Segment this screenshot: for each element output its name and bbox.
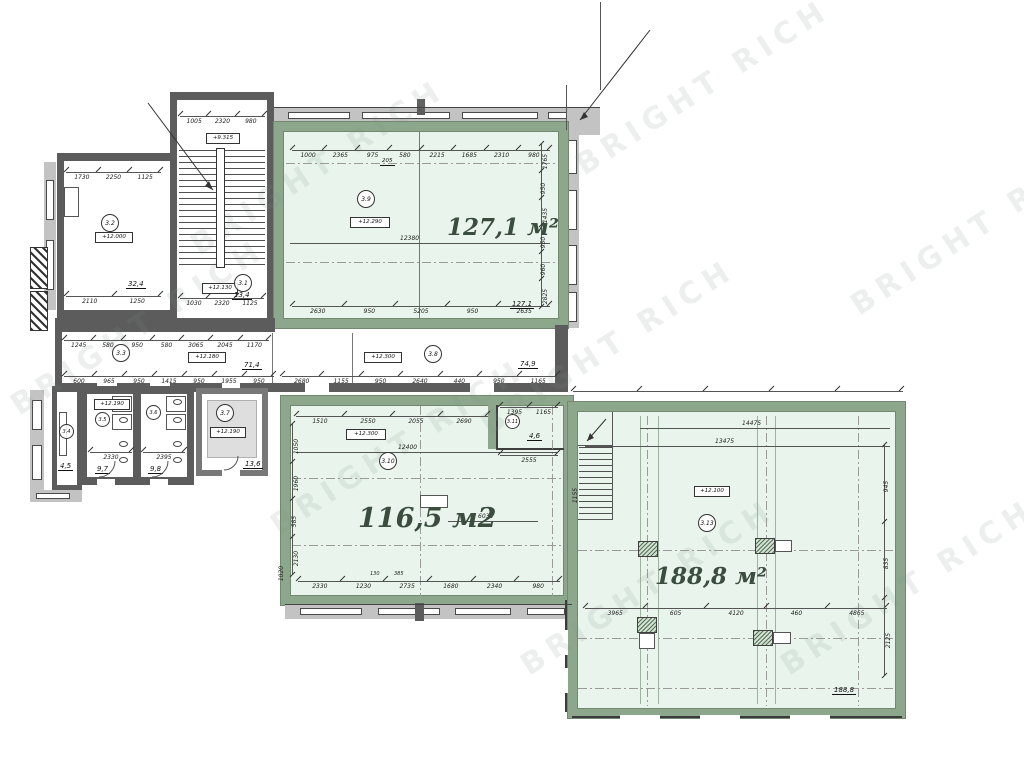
watermark: BRIGHT RICH	[844, 132, 1024, 323]
watermark: BRIGHT RICH	[569, 0, 836, 183]
dimension-chain: 2395	[143, 452, 185, 461]
dimension-chain: 9458352125	[884, 445, 893, 675]
room-area-note: 32,4	[126, 280, 146, 289]
dimension-line	[296, 452, 558, 453]
room-number-badge: 3.11	[505, 414, 520, 429]
grid-line	[286, 163, 558, 164]
room-area-label: 188,8 м²	[655, 563, 767, 590]
level-marker: +12.000	[95, 232, 133, 243]
stair-treads	[579, 447, 612, 515]
partition-line	[419, 132, 420, 318]
grid-line	[292, 478, 564, 479]
room-area-label: 127,1 м²	[447, 214, 559, 241]
room-area-note: 13,4	[232, 291, 252, 300]
window	[462, 112, 538, 119]
dimension-line	[290, 243, 550, 244]
grid-line	[552, 406, 553, 596]
room-number-badge: 3.3	[112, 344, 130, 362]
dimension-chain: 173022501125	[66, 172, 161, 181]
guide-line	[658, 416, 659, 704]
wall-edge-line	[285, 604, 572, 605]
room-area-note: 127,1	[510, 300, 534, 309]
guide-line	[640, 416, 641, 704]
dimension-chain: 10002365975580221516852310980	[292, 150, 550, 159]
column-base	[775, 540, 792, 552]
room-area-note: 188,8	[832, 686, 856, 695]
column	[753, 630, 773, 646]
dimension-label: 14475	[742, 420, 761, 427]
door-swing-arc	[224, 456, 238, 470]
grid-line	[292, 545, 564, 546]
grid-line	[858, 416, 859, 706]
column	[637, 617, 657, 633]
level-marker: +12.190	[94, 399, 130, 410]
dimension-chain: 60096595014159501955950	[64, 376, 274, 385]
grid-line	[578, 550, 895, 551]
room-number-badge: 3.2	[101, 214, 119, 232]
level-marker: +12.300	[364, 352, 402, 363]
stair-enclosure	[612, 412, 613, 520]
ladder-symbol	[64, 187, 79, 217]
window	[790, 715, 830, 719]
grid-line	[566, 85, 567, 130]
room-area-note: 13,6	[243, 460, 263, 469]
level-marker: +12.300	[346, 429, 386, 440]
room-number-badge: 3.13	[698, 514, 716, 532]
dimension-label: 205	[380, 157, 395, 166]
column	[638, 541, 658, 557]
grid-line	[578, 638, 895, 639]
room-number-badge: 3.6	[146, 405, 161, 420]
dimension-chain: 21101250	[66, 296, 161, 305]
partition-wall	[496, 448, 564, 450]
window	[378, 608, 440, 615]
room-area-note: 71,4	[242, 361, 262, 370]
guide-line	[775, 416, 776, 704]
level-marker: +12.100	[694, 486, 730, 497]
room-number-badge: 3.8	[424, 345, 442, 363]
window	[620, 715, 660, 719]
sink	[119, 441, 128, 447]
room-area-note: 9,7	[95, 465, 110, 474]
hatched-wall-section	[30, 247, 48, 289]
dimension-label: 12380	[400, 235, 419, 242]
room-number-badge: 3.1	[234, 274, 252, 292]
stair-enclosure	[578, 519, 612, 520]
dimension-chain: 2330	[90, 452, 132, 461]
dimension-chain: 2680115595026404409501165	[282, 376, 558, 385]
wall	[133, 394, 141, 477]
level-marker: +12.180	[188, 352, 226, 363]
room-area-label: 116,5 м2	[358, 503, 496, 534]
grid-line	[766, 416, 767, 706]
window	[568, 245, 577, 285]
window	[36, 493, 70, 499]
room-area-note: 74,9	[518, 360, 538, 369]
room-area-note: 4,5	[58, 462, 73, 471]
sink	[173, 441, 182, 447]
wall	[57, 153, 64, 318]
room-188-8	[568, 402, 905, 718]
level-marker: +9.315	[206, 133, 240, 144]
toilet	[173, 399, 182, 405]
window	[564, 668, 568, 693]
dimension-chain: 23301230273516802340980	[298, 581, 560, 590]
room-number-badge: 3.10	[379, 452, 397, 470]
floor-plan: BRIGHT RICH BRIGHT RICH BRIGHT RICH BRIG…	[0, 0, 1024, 767]
column	[755, 538, 775, 554]
toilet	[173, 417, 182, 423]
hatched-wall-section	[30, 291, 48, 331]
wall	[170, 92, 274, 100]
room-number-badge: 3.4	[59, 424, 74, 439]
window	[568, 190, 577, 230]
dimension-line	[585, 446, 890, 447]
window	[300, 608, 362, 615]
window	[288, 112, 350, 119]
room-number-badge: 3.7	[216, 404, 234, 422]
wall-edge-line	[274, 107, 600, 108]
dimension-chain: 1510255020552690	[296, 416, 488, 425]
level-marker: +12.290	[350, 217, 390, 228]
dimension-line	[573, 391, 903, 392]
entrance-door	[415, 603, 424, 621]
grid-line	[286, 262, 558, 263]
window	[46, 180, 54, 220]
door-opening	[150, 479, 168, 485]
window	[527, 608, 565, 615]
wall	[196, 388, 268, 394]
dimension-chain: 2555	[500, 455, 558, 464]
dimension-chain: 396560541204604865	[585, 608, 887, 617]
dimension-line	[640, 428, 890, 429]
window	[568, 292, 577, 322]
column-base	[639, 633, 655, 649]
door-opening	[222, 470, 240, 476]
wall	[262, 388, 268, 476]
dimension-label: 130	[370, 571, 380, 577]
wall	[80, 386, 87, 485]
dimension-label: 1020	[278, 566, 285, 581]
column-base	[773, 632, 791, 644]
wall	[196, 388, 202, 476]
door-opening	[97, 479, 115, 485]
dimension-label: 385	[394, 571, 404, 577]
dimension-chain: 105019605852130	[292, 424, 301, 574]
room-area-note: 9,8	[148, 465, 163, 474]
room-area-note: 4,6	[527, 432, 542, 441]
stair-stringer	[216, 148, 225, 268]
grid-line	[600, 2, 601, 90]
guide-line	[757, 416, 758, 704]
dimension-chain: 10052320980	[180, 116, 265, 125]
dimension-chain: 1245580950580306520451170	[64, 340, 269, 349]
dimension-label: 1155	[572, 488, 579, 503]
window	[455, 608, 511, 615]
window	[32, 445, 42, 480]
toilet	[119, 417, 128, 423]
room-number-badge: 3.5	[95, 412, 110, 427]
dimension-label: 12400	[398, 444, 417, 451]
wall	[57, 153, 170, 161]
level-marker: +12.190	[210, 427, 246, 438]
room-number-badge: 3.9	[357, 190, 375, 208]
wall	[80, 386, 194, 394]
dimension-label: 13475	[715, 438, 734, 445]
window	[700, 715, 740, 719]
wall	[187, 386, 194, 485]
grid-line	[647, 416, 648, 706]
wall	[52, 485, 82, 490]
